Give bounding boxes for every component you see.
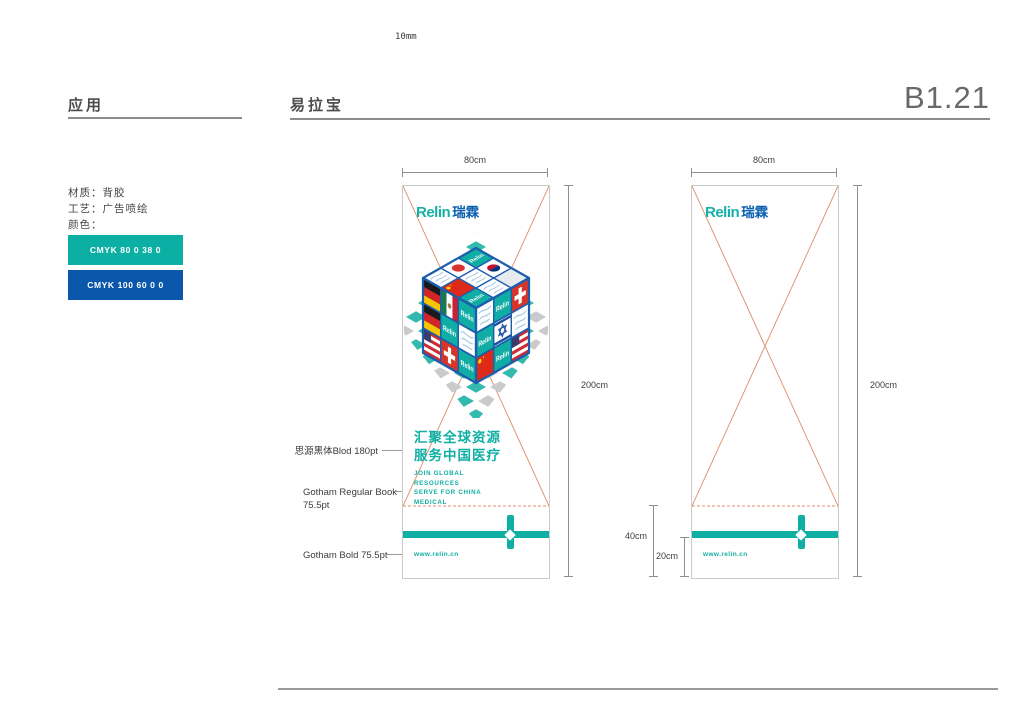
dim-tick (402, 168, 403, 177)
leader-line (382, 450, 402, 451)
dim-tick (691, 168, 692, 177)
brand-guideline-page: 10mm 应用 易拉宝 B1.21 材质：背胶 工艺：广告喷绘 颜色： CMYK… (0, 0, 1024, 724)
dim-tick (649, 576, 658, 577)
header-rule-main (290, 118, 990, 120)
dim-line-height-right (857, 185, 858, 577)
tagline-line3: SERVE FOR CHINA (414, 488, 481, 498)
logo-text-cn: 瑞霖 (452, 205, 479, 220)
spec-color: 颜色： (68, 217, 103, 232)
tagline-line4: MEDICAL (414, 498, 481, 508)
tagline-en: JOIN GLOBAL RESOURCES SERVE FOR CHINA ME… (414, 469, 481, 507)
dim-line-height-left (568, 185, 569, 577)
ruler-label: 10mm (395, 32, 417, 42)
dim-width-label-right: 80cm (691, 155, 837, 165)
cut-lines (692, 186, 838, 577)
annotation-body-font-line2: 75.5pt (303, 499, 397, 512)
color-swatch-teal: CMYK 80 0 38 0 (68, 235, 183, 265)
dim-line-footer (684, 537, 685, 577)
teal-stripe (403, 531, 549, 538)
dim-tick (853, 185, 862, 186)
logo-text-en: Relin (416, 204, 450, 221)
relin-logo: Relin瑞霖 (416, 201, 479, 222)
dim-tick (547, 168, 548, 177)
teal-stripe (692, 531, 838, 538)
dim-tick (853, 576, 862, 577)
headline-cn: 汇聚全球资源 服务中国医疗 (414, 429, 501, 464)
annotation-headline-font: 思源黑体Blod 180pt (256, 445, 378, 458)
headline-line1: 汇聚全球资源 (414, 429, 501, 447)
dim-line-width-left (402, 172, 548, 173)
dim-width-label-left: 80cm (402, 155, 548, 165)
section-title-item: 易拉宝 (290, 94, 344, 115)
dim-tick (836, 168, 837, 177)
dim-height-label-right: 200cm (870, 380, 897, 390)
tagline-line2: RESOURCES (414, 479, 481, 489)
rollup-banner-template: Relin瑞霖 www.relin.cn (691, 185, 839, 579)
tagline-line1: JOIN GLOBAL (414, 469, 481, 479)
rollup-banner-design: Relin (402, 185, 550, 579)
spec-material: 材质：背胶 (68, 185, 126, 200)
dim-tick (649, 505, 658, 506)
swatch-label-teal: CMYK 80 0 38 0 (90, 245, 161, 255)
relin-logo: Relin瑞霖 (705, 201, 768, 222)
dim-height-label-left: 200cm (581, 380, 608, 390)
color-swatch-blue: CMYK 100 60 0 0 (68, 270, 183, 300)
leader-line (386, 554, 402, 555)
header-rule-left (68, 117, 242, 119)
logo-text-en: Relin (705, 204, 739, 221)
dim-line-width-right (691, 172, 837, 173)
page-code: B1.21 (860, 80, 990, 116)
website-url: www.relin.cn (414, 551, 459, 558)
dim-line-base (653, 505, 654, 577)
page-footer-rule (278, 688, 998, 690)
annotation-body-font: Gotham Regular Book 75.5pt (303, 486, 397, 512)
dim-tick (680, 537, 689, 538)
logo-text-cn: 瑞霖 (741, 205, 768, 220)
leader-line (394, 491, 402, 492)
annotation-body-font-line1: Gotham Regular Book (303, 486, 397, 499)
section-title-application: 应用 (68, 94, 104, 115)
dim-base-label: 40cm (605, 531, 647, 541)
dim-tick (680, 576, 689, 577)
website-url: www.relin.cn (703, 551, 748, 558)
flag-cube-graphic: Relin (404, 226, 548, 418)
dim-footer-label: 20cm (638, 551, 678, 561)
dim-tick (564, 576, 573, 577)
swatch-label-blue: CMYK 100 60 0 0 (87, 280, 164, 290)
spec-process: 工艺：广告喷绘 (68, 201, 149, 216)
dim-tick (564, 185, 573, 186)
headline-line2: 服务中国医疗 (414, 447, 501, 465)
annotation-site-font: Gotham Bold 75.5pt (303, 549, 388, 562)
